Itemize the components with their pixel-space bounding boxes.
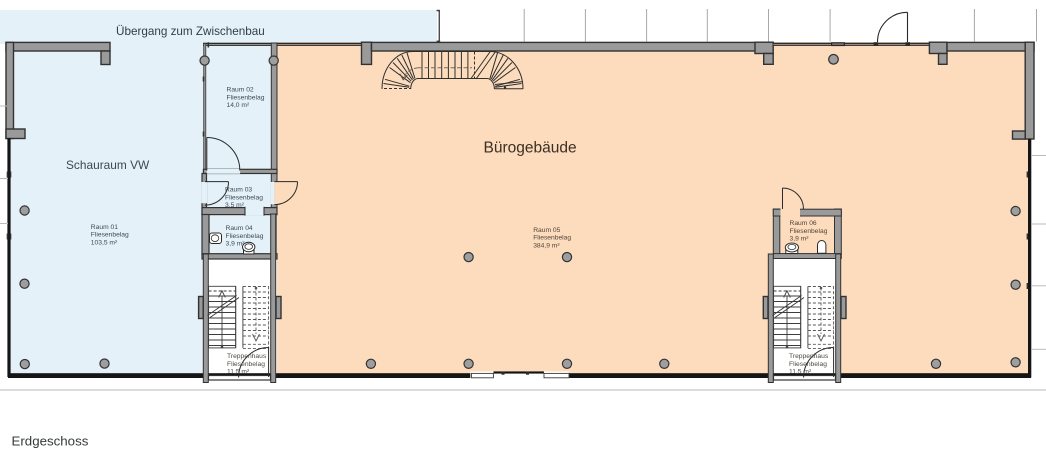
svg-text:Fliesenbelag: Fliesenbelag bbox=[91, 232, 129, 239]
svg-text:384,9 m²: 384,9 m² bbox=[533, 242, 560, 249]
svg-text:Fliesenbelag: Fliesenbelag bbox=[533, 235, 571, 242]
svg-text:Schauraum VW: Schauraum VW bbox=[66, 158, 150, 172]
svg-text:Raum 01: Raum 01 bbox=[91, 224, 118, 231]
svg-text:11,5 m²: 11,5 m² bbox=[789, 369, 812, 376]
svg-text:Raum 05: Raum 05 bbox=[533, 227, 560, 234]
svg-text:3,9 m²: 3,9 m² bbox=[226, 241, 246, 248]
svg-text:Treppenhaus: Treppenhaus bbox=[789, 353, 829, 360]
svg-text:103,5 m²: 103,5 m² bbox=[91, 239, 118, 246]
svg-text:Raum 04: Raum 04 bbox=[226, 225, 253, 232]
svg-text:Raum 03: Raum 03 bbox=[225, 187, 252, 194]
svg-text:Fliesenbelag: Fliesenbelag bbox=[227, 361, 265, 368]
svg-text:Übergang zum Zwischenbau: Übergang zum Zwischenbau bbox=[116, 25, 265, 38]
svg-text:Fliesenbelag: Fliesenbelag bbox=[227, 94, 265, 101]
svg-text:Erdgeschoss: Erdgeschoss bbox=[12, 434, 89, 449]
svg-text:Fliesenbelag: Fliesenbelag bbox=[789, 361, 827, 368]
svg-text:Raum 02: Raum 02 bbox=[227, 87, 254, 94]
svg-text:Raum 06: Raum 06 bbox=[790, 220, 817, 227]
svg-text:Fliesenbelag: Fliesenbelag bbox=[790, 228, 828, 235]
svg-text:3,9 m²: 3,9 m² bbox=[790, 236, 810, 243]
svg-text:Bürogebäude: Bürogebäude bbox=[484, 140, 577, 157]
svg-text:3,5 m²: 3,5 m² bbox=[225, 202, 245, 209]
svg-text:Treppenhaus: Treppenhaus bbox=[227, 353, 267, 360]
svg-text:14,0 m²: 14,0 m² bbox=[227, 102, 250, 109]
svg-text:Fliesenbelag: Fliesenbelag bbox=[226, 233, 264, 240]
svg-text:11,5 m²: 11,5 m² bbox=[227, 369, 250, 376]
svg-text:Fliesenbelag: Fliesenbelag bbox=[225, 194, 263, 201]
